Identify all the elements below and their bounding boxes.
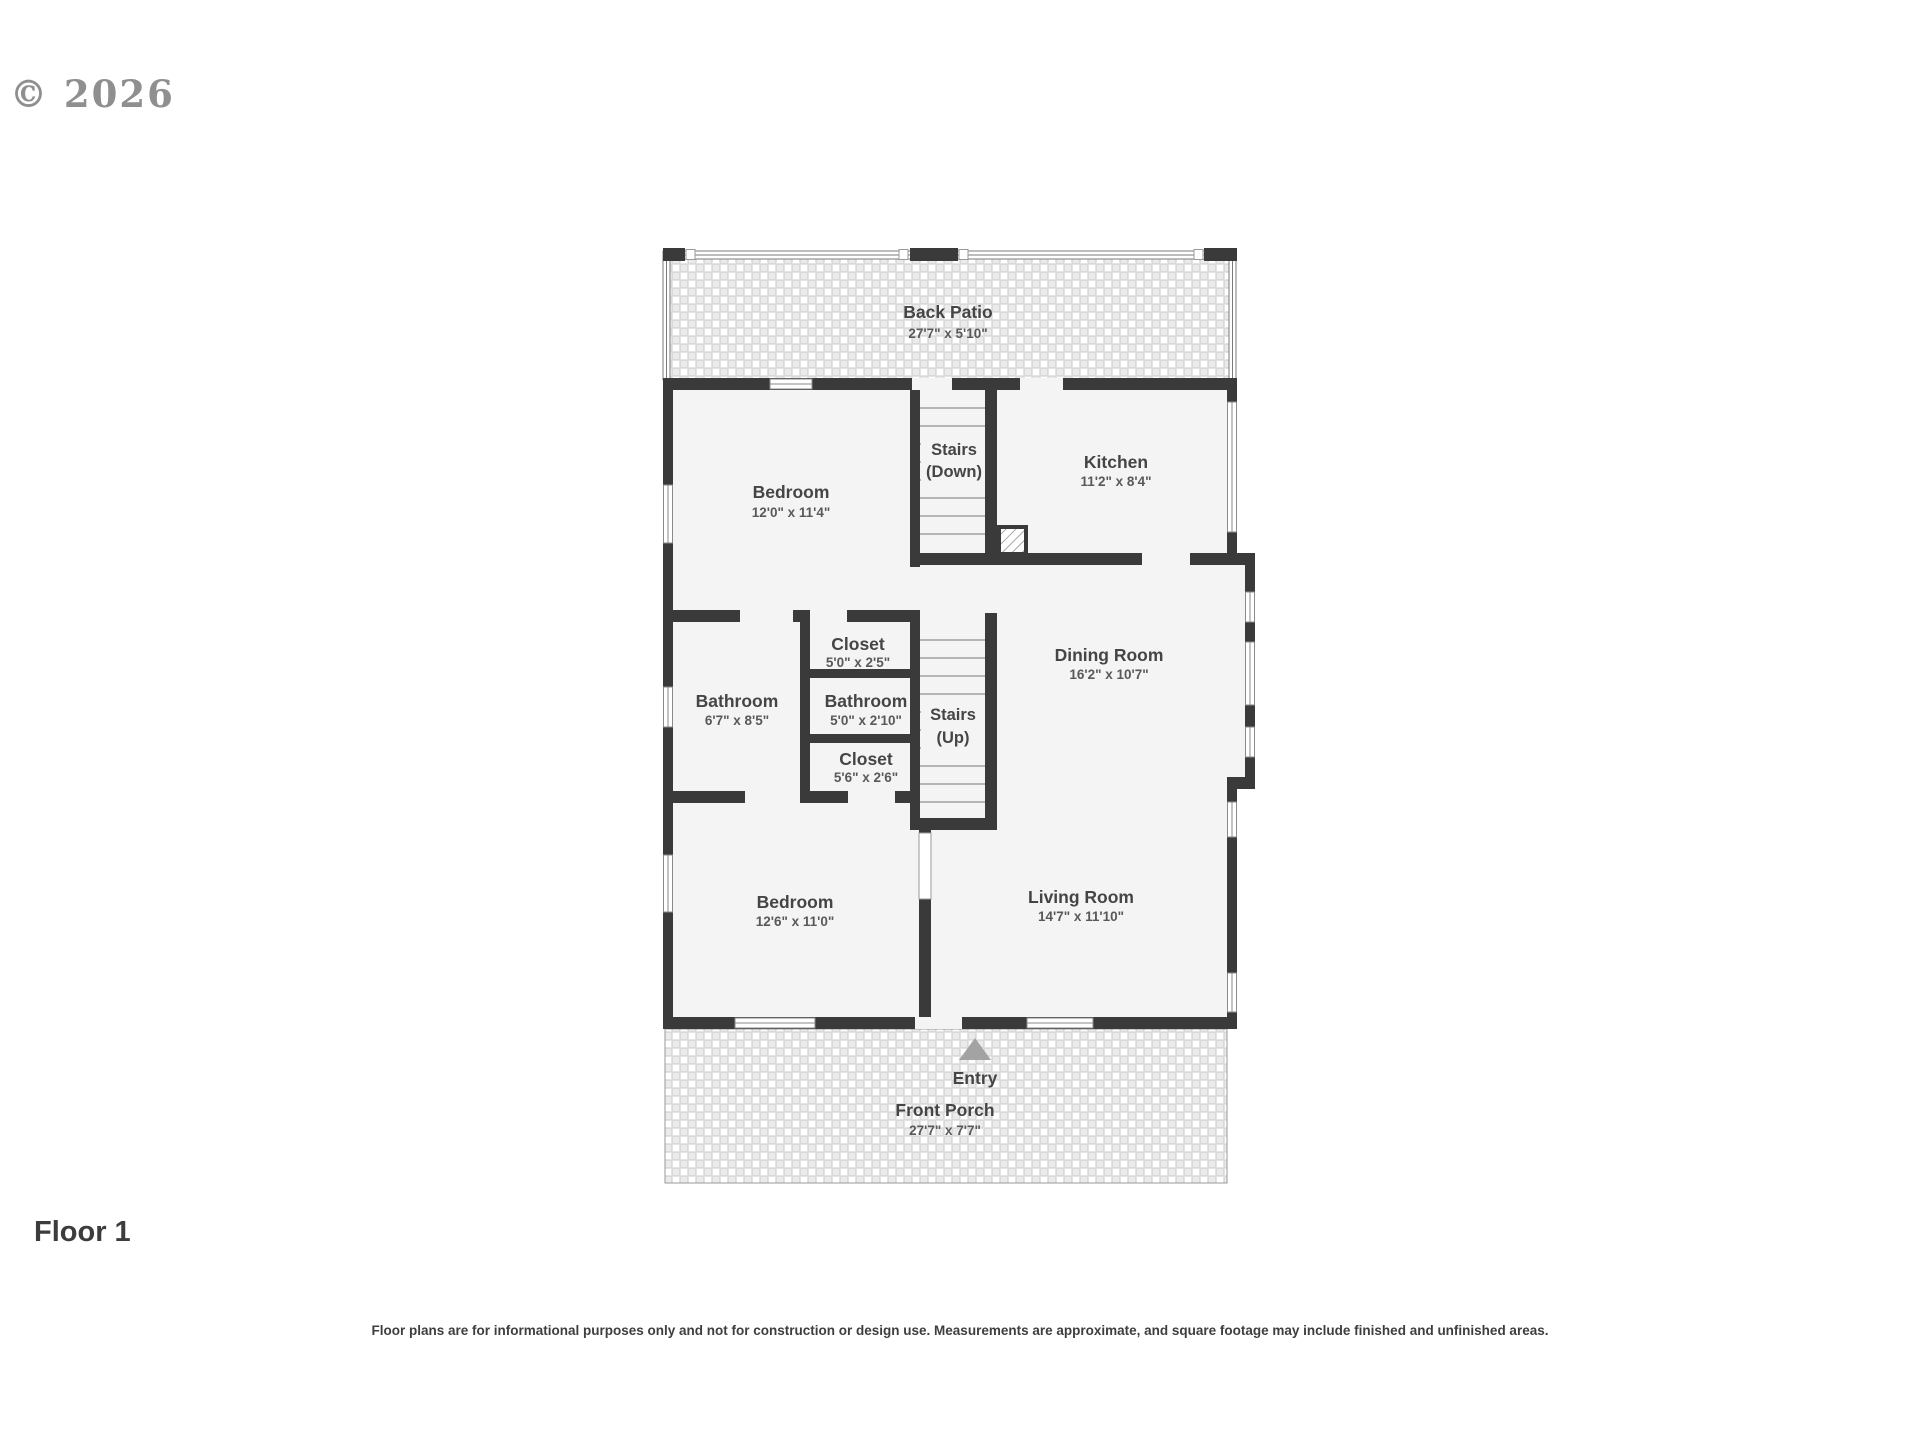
svg-text:Bathroom: Bathroom bbox=[825, 691, 908, 711]
bathroom-main-label: Bathroom 6'7" x 8'5" bbox=[696, 691, 779, 728]
divider-door-opening bbox=[919, 833, 931, 899]
floor-title: Floor 1 bbox=[34, 1216, 131, 1249]
svg-text:Dining Room: Dining Room bbox=[1055, 645, 1164, 665]
closet-upper-label: Closet 5'0" x 2'5" bbox=[826, 634, 890, 670]
svg-text:27'7" x 5'10": 27'7" x 5'10" bbox=[908, 326, 987, 341]
kitchen-label: Kitchen 11'2" x 8'4" bbox=[1080, 452, 1151, 489]
svg-text:Back Patio: Back Patio bbox=[903, 302, 992, 322]
svg-text:12'0" x 11'4": 12'0" x 11'4" bbox=[752, 505, 831, 520]
svg-text:(Up): (Up) bbox=[937, 729, 970, 747]
bedroom-bottom-label: Bedroom 12'6" x 11'0" bbox=[756, 892, 835, 929]
svg-text:5'0" x 2'10": 5'0" x 2'10" bbox=[830, 713, 902, 728]
bedroom-top-label: Bedroom 12'0" x 11'4" bbox=[752, 482, 831, 520]
svg-text:Kitchen: Kitchen bbox=[1084, 452, 1148, 472]
chimney-hatched-box bbox=[999, 527, 1026, 554]
floor-plan-page: © 2026 bbox=[0, 0, 1920, 1440]
svg-text:Closet: Closet bbox=[831, 634, 885, 654]
svg-text:(Down): (Down) bbox=[926, 463, 982, 481]
svg-text:Living Room: Living Room bbox=[1028, 887, 1134, 907]
svg-text:6'7" x 8'5": 6'7" x 8'5" bbox=[705, 713, 769, 728]
svg-text:Stairs: Stairs bbox=[931, 441, 977, 459]
floor-plan-canvas: Back Patio 27'7" x 5'10" Bedroom 12'0" x… bbox=[0, 0, 1920, 1440]
back-patio-label: Back Patio 27'7" x 5'10" bbox=[903, 302, 992, 341]
svg-text:11'2" x 8'4": 11'2" x 8'4" bbox=[1080, 474, 1151, 489]
svg-text:Entry: Entry bbox=[953, 1068, 998, 1088]
dining-room-label: Dining Room 16'2" x 10'7" bbox=[1055, 645, 1164, 682]
svg-text:5'6" x 2'6": 5'6" x 2'6" bbox=[834, 770, 898, 785]
svg-text:Bathroom: Bathroom bbox=[696, 691, 779, 711]
closet-lower-label: Closet 5'6" x 2'6" bbox=[834, 749, 898, 785]
svg-text:Bedroom: Bedroom bbox=[753, 482, 830, 502]
entry-label: Entry bbox=[953, 1068, 998, 1088]
svg-text:Bedroom: Bedroom bbox=[757, 892, 834, 912]
svg-text:16'2" x 10'7": 16'2" x 10'7" bbox=[1069, 667, 1148, 682]
svg-text:12'6" x 11'0": 12'6" x 11'0" bbox=[756, 914, 835, 929]
svg-text:Front Porch: Front Porch bbox=[895, 1100, 994, 1120]
svg-text:14'7" x 11'10": 14'7" x 11'10" bbox=[1038, 909, 1124, 924]
svg-text:5'0" x 2'5": 5'0" x 2'5" bbox=[826, 655, 890, 670]
svg-text:27'7" x 7'7": 27'7" x 7'7" bbox=[909, 1123, 981, 1138]
disclaimer-text: Floor plans are for informational purpos… bbox=[0, 1323, 1920, 1338]
front-porch-label: Front Porch 27'7" x 7'7" bbox=[895, 1100, 994, 1138]
bathroom-small-label: Bathroom 5'0" x 2'10" bbox=[825, 691, 908, 728]
svg-text:Stairs: Stairs bbox=[930, 706, 976, 724]
living-room-label: Living Room 14'7" x 11'10" bbox=[1028, 887, 1134, 924]
svg-text:Closet: Closet bbox=[839, 749, 893, 769]
